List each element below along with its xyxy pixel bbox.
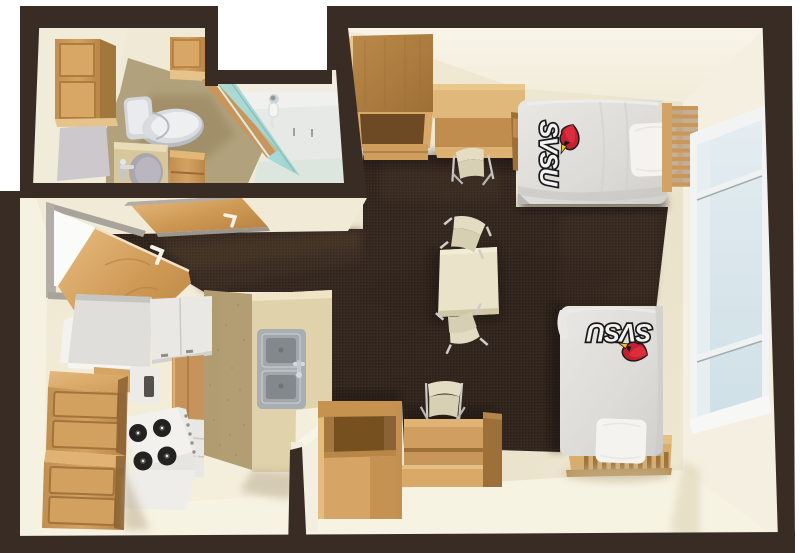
svg-text:SVSU: SVSU [534,121,562,187]
svg-text:SVSU: SVSU [586,318,652,346]
